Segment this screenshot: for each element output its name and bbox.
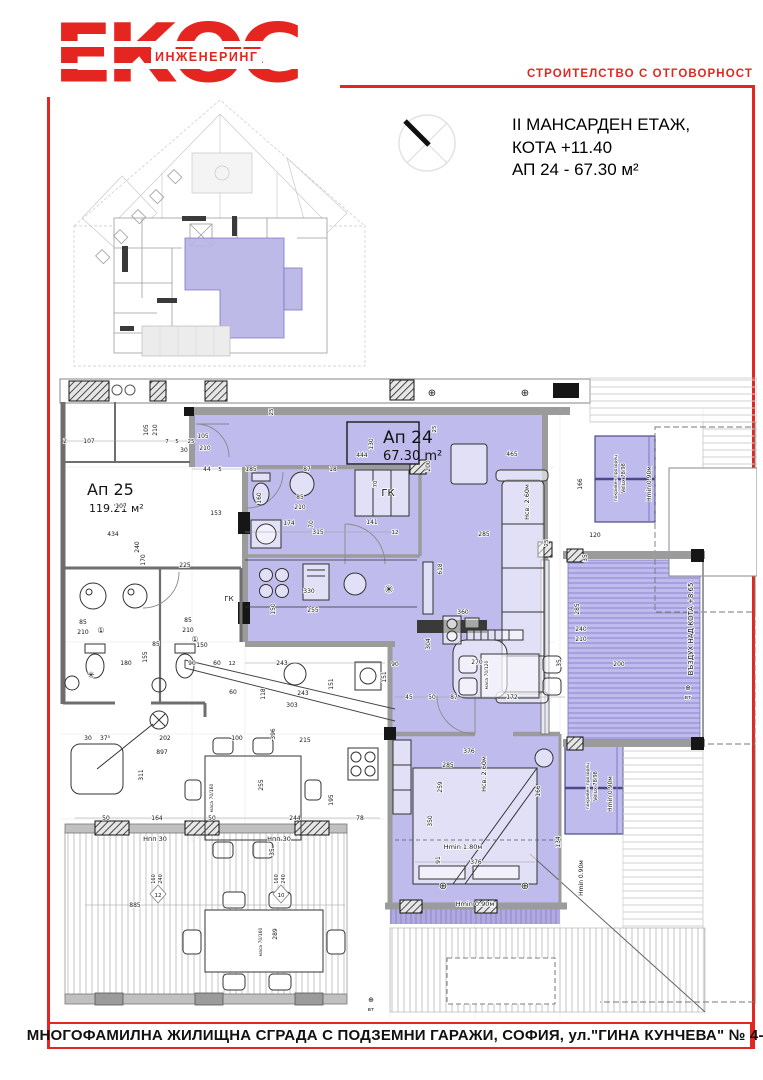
plan-label: вт <box>685 695 692 701</box>
plan-label: 105 <box>143 424 150 436</box>
plan-label: 90 <box>391 661 399 668</box>
frame-top-line <box>340 85 754 88</box>
corner-sink <box>65 676 79 690</box>
washbasin <box>80 583 106 609</box>
plan-label: 155 <box>142 651 149 663</box>
plan-label: 166 <box>577 478 584 490</box>
chair <box>269 974 291 990</box>
plan-label: 259 <box>437 781 444 793</box>
plan-label: 25 <box>269 408 275 415</box>
plan-label: 141 <box>366 519 378 526</box>
plan-label: Hmin 0.90м <box>646 466 653 502</box>
stove-burner <box>260 569 273 582</box>
plan-label: 70 <box>308 520 315 528</box>
plan-label: 10 <box>278 893 285 899</box>
company-tagline: СТРОИТЕЛСТВО С ОТГОВОРНОСТ <box>527 68 753 80</box>
title-block: II МАНСАРДЕН ЕТАЖ, КОТА +11.40 АП 24 - 6… <box>512 114 757 182</box>
side-table <box>451 444 487 484</box>
chair <box>305 780 321 800</box>
plan-label: 243 <box>276 660 288 667</box>
title-floor: II МАНСАРДЕН ЕТАЖ, <box>512 114 757 137</box>
plan-label: 35 <box>269 848 276 856</box>
plan-label: 35 <box>582 554 589 562</box>
plan-label: 270 <box>471 659 483 666</box>
plan-label: 434 <box>107 531 119 538</box>
plan-label: Hmin 0.90м <box>578 860 585 896</box>
company-logo: ЕКОС ИНЖЕНЕРИНГ <box>53 16 305 94</box>
plan-label: 240 <box>575 626 587 633</box>
toilet-tank <box>252 473 270 481</box>
plan-label: 164 <box>151 815 163 822</box>
plan-label: 91 <box>435 856 442 864</box>
logo-subtitle: ИНЖЕНЕРИНГ <box>151 49 262 65</box>
title-apartment: АП 24 - 67.30 м² <box>512 159 757 182</box>
plan-label: 151 <box>381 671 388 683</box>
kitchen-sink <box>344 573 366 595</box>
plan-label: 303 <box>286 702 298 709</box>
sink <box>256 524 276 544</box>
plan-label: 174 <box>283 520 295 527</box>
plan-label: 360 <box>457 609 469 616</box>
outdoor-table <box>205 910 323 972</box>
plan-label: 240 <box>134 541 141 553</box>
plan-label: 85 <box>152 641 160 648</box>
chair <box>223 892 245 908</box>
plan-label: 18 <box>329 466 337 473</box>
plan-label: 153 <box>210 510 222 517</box>
plan-label: 200 <box>425 460 432 472</box>
chair <box>459 678 477 695</box>
plan-label: 134 <box>555 836 562 848</box>
plan-label: 289 <box>272 928 279 940</box>
plan-label: 60 <box>229 689 237 696</box>
plan-label: 50 <box>208 815 216 822</box>
plan-label: 25 <box>432 425 438 432</box>
plan-label: 130 <box>368 438 375 450</box>
plan-label: 12 <box>229 661 236 667</box>
plan-label: Hпп 30 <box>143 835 167 843</box>
key-plan-lower-terrace <box>142 326 230 356</box>
plan-label: Velux 78/98 <box>621 463 627 493</box>
north-arrow-compass <box>396 112 458 174</box>
plan-label: 25 <box>544 539 550 546</box>
plan-label: 85 <box>296 494 304 501</box>
plan-label: 225 <box>179 562 191 569</box>
plan-label: 255 <box>307 607 319 614</box>
plan-label: 210 <box>152 424 159 436</box>
plan-label: Нсв. 2.60м <box>523 484 531 520</box>
round-side-table <box>535 749 553 767</box>
plan-label: 45 <box>405 694 413 701</box>
plan-label: 7 <box>165 439 169 445</box>
chair <box>185 780 201 800</box>
plan-label: 107 <box>83 438 95 445</box>
chair <box>213 738 233 754</box>
plan-label: Hmin 0.90м <box>607 776 614 812</box>
plan-label: 87 <box>303 466 311 473</box>
plan-label: 172 <box>506 694 518 701</box>
plan-label: ⊕ <box>368 996 374 1004</box>
plan-label: маса 70/120 <box>484 661 490 690</box>
plan-label: ГК <box>381 488 394 499</box>
plan-label: 240 <box>281 874 287 884</box>
plan-label: ⊕ <box>439 881 447 892</box>
plan-label: 210 <box>77 629 89 636</box>
plan-label: покривен прозорец <box>614 455 619 501</box>
logo-stripe <box>53 41 305 47</box>
plan-label: 160 <box>151 874 157 884</box>
key-plan-overview <box>62 98 374 386</box>
plan-label: 44 <box>203 466 211 473</box>
plan-label: 151 <box>328 678 335 690</box>
plan-label: 150 <box>196 642 208 649</box>
plan-label: 5 <box>218 467 222 473</box>
plan-label: 244 <box>289 815 301 822</box>
washing-machine <box>355 662 381 690</box>
plan-label: ВЪЗДУХ НАД КОТА +8.65 <box>687 583 695 676</box>
plan-label: 67.30 m² <box>383 449 442 464</box>
plan-label: 285 <box>442 762 454 769</box>
chair <box>183 930 201 954</box>
plan-label: Hmin 0.90м <box>456 900 495 908</box>
plan-label: 170 <box>140 554 147 566</box>
chair <box>223 974 245 990</box>
plan-label: 215 <box>299 737 311 744</box>
plan-label: маса 70/160 <box>209 784 215 813</box>
plan-label: 50 <box>102 815 110 822</box>
plan-label: 200 <box>613 661 625 668</box>
plan-label: 210 <box>182 627 194 634</box>
plan-label: ① <box>97 626 104 635</box>
plan-label: 12 <box>392 530 399 536</box>
plan-label: Hпп 30 <box>267 835 291 843</box>
plan-label: 85 <box>79 619 87 626</box>
plan-label: 304 <box>425 638 432 650</box>
plan-label: 85 <box>184 617 192 624</box>
bedroom-wardrobe <box>393 740 411 814</box>
plan-label: 12 <box>155 893 162 899</box>
plan-label: 50 <box>428 694 436 701</box>
plan-label: 160 <box>256 492 263 504</box>
chair <box>543 678 561 695</box>
title-elevation: КОТА +11.40 <box>512 137 757 160</box>
plan-label: 78 <box>356 815 364 822</box>
tv-cabinet <box>423 562 433 614</box>
plan-label: 210 <box>294 504 306 511</box>
plan-label: 618 <box>437 563 444 575</box>
roof-dormer <box>669 468 757 576</box>
plan-label: 465 <box>506 451 518 458</box>
plan-label: 5 <box>175 439 179 445</box>
frame-left-line <box>47 97 50 1049</box>
plan-label: 255 <box>258 779 265 791</box>
plan-label: 240 <box>158 874 164 884</box>
plan-label: 30 <box>180 447 188 454</box>
apartment-24-terrace <box>568 560 700 740</box>
plan-label: 166 <box>535 785 542 797</box>
plan-label: Hmin 1.80м <box>444 843 483 851</box>
plan-label: 25 <box>188 439 195 445</box>
plan-label: ГК <box>224 595 233 603</box>
plan-label: 60 <box>213 660 221 667</box>
plan-label: Ап 25 <box>87 480 134 499</box>
plan-label: 202 <box>159 735 171 742</box>
plan-label: 160 <box>274 874 280 884</box>
plan-label: 70 <box>373 480 379 487</box>
plan-label: 100 <box>231 735 243 742</box>
plan-label: 311 <box>138 769 145 781</box>
plan-label: ✳ <box>384 583 393 596</box>
plan-label: ✳ <box>87 671 95 681</box>
plan-label: 2 <box>63 438 67 445</box>
pillow <box>473 866 519 879</box>
plan-label: вт <box>368 1007 375 1013</box>
plan-label: Velux 78/98 <box>593 771 599 801</box>
plan-label: Ап 24 <box>383 428 433 448</box>
plan-label: 195 <box>328 794 335 806</box>
plan-label: 376 <box>463 748 475 755</box>
key-plan-highlight-terrace <box>284 268 302 310</box>
washbasin <box>123 584 147 608</box>
plan-label: 376 <box>470 859 482 866</box>
plan-label: 105 <box>197 433 209 440</box>
plan-label: 185 <box>245 466 257 473</box>
plan-label: 150 <box>270 603 277 615</box>
plan-label: 118 <box>260 688 267 700</box>
chair <box>327 930 345 954</box>
plan-label: 285 <box>478 531 490 538</box>
plan-label: 35 <box>556 659 563 667</box>
plan-label: 330 <box>303 588 315 595</box>
shower <box>290 472 314 496</box>
plan-label: маса 70/160 <box>258 928 264 957</box>
plan-label: 120 <box>589 532 601 539</box>
plan-label: 37⁵ <box>100 735 111 742</box>
plan-label: 350 <box>427 815 434 827</box>
plan-label: 285 <box>574 603 581 615</box>
plan-label: 210 <box>575 636 587 643</box>
plan-label: 315 <box>312 529 324 536</box>
plan-label: 243 <box>297 690 309 697</box>
plan-label: 210 <box>199 445 211 452</box>
plan-label: ⊕ <box>521 881 529 892</box>
north-arrow <box>405 121 429 145</box>
plan-label: 180 <box>120 660 132 667</box>
toilet-tank <box>85 644 105 653</box>
plan-label: Нсв. 2.60м <box>480 756 488 792</box>
plan-label: 885 <box>129 902 141 909</box>
plan-label: 30 <box>84 735 92 742</box>
footer-address-band: МНОГОФАМИЛНА ЖИЛИЩНА СГРАДА С ПОДЗЕМНИ Г… <box>47 1022 752 1049</box>
plan-label: 396 <box>270 728 277 740</box>
plan-label: 897 <box>156 749 168 756</box>
plan-label: ⊕ <box>521 388 529 399</box>
plan-label: ⊕ <box>428 388 436 399</box>
building-address: МНОГОФАМИЛНА ЖИЛИЩНА СГРАДА С ПОДЗЕМНИ Г… <box>27 1027 763 1044</box>
plan-label: ⊕ <box>685 684 691 692</box>
plan-label: 107 <box>115 503 127 510</box>
plan-label: 90 <box>188 660 196 667</box>
plan-label: покривен прозорец <box>586 763 591 809</box>
floor-plan-sheet: { "brand": { "logo_main": "ЕКОС", "logo_… <box>0 0 763 1080</box>
main-floor-plan: Ап 2467.30 m²Ап 25119.21 м²ГКГКНсв. 2.60… <box>55 372 757 1022</box>
plan-label: 444 <box>356 452 368 459</box>
plan-label: 87 <box>450 694 458 701</box>
